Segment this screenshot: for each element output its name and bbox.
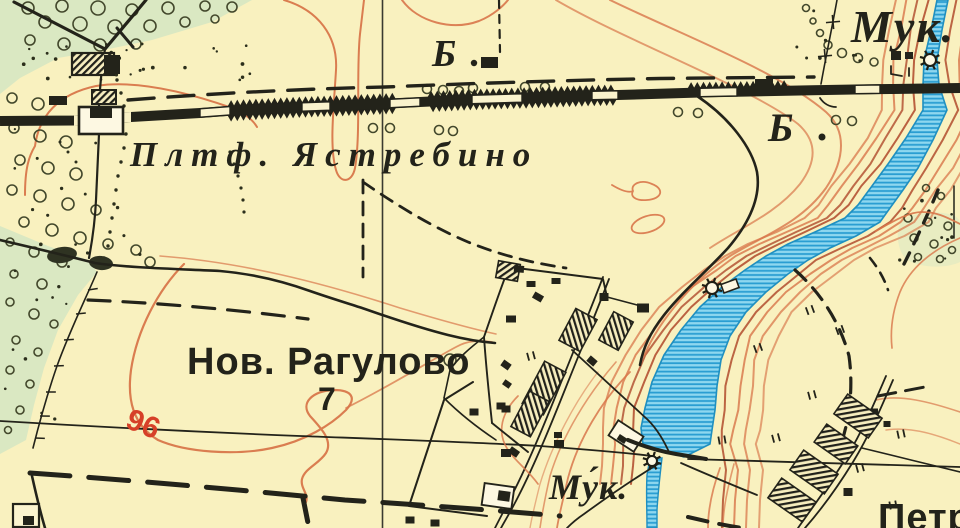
svg-text:Нов. Рагулово: Нов. Рагулово bbox=[187, 341, 471, 383]
svg-text:Б: Б bbox=[431, 33, 456, 75]
svg-text:Мук.: Мук. bbox=[850, 1, 955, 52]
svg-text:Плтф. Ястребино: Плтф. Ястребино bbox=[129, 135, 538, 174]
svg-text:7: 7 bbox=[318, 381, 336, 417]
svg-text:Петр: Петр bbox=[878, 497, 960, 528]
svg-text:Б: Б bbox=[767, 105, 793, 150]
svg-text:Му́к.: Му́к. bbox=[548, 466, 628, 507]
